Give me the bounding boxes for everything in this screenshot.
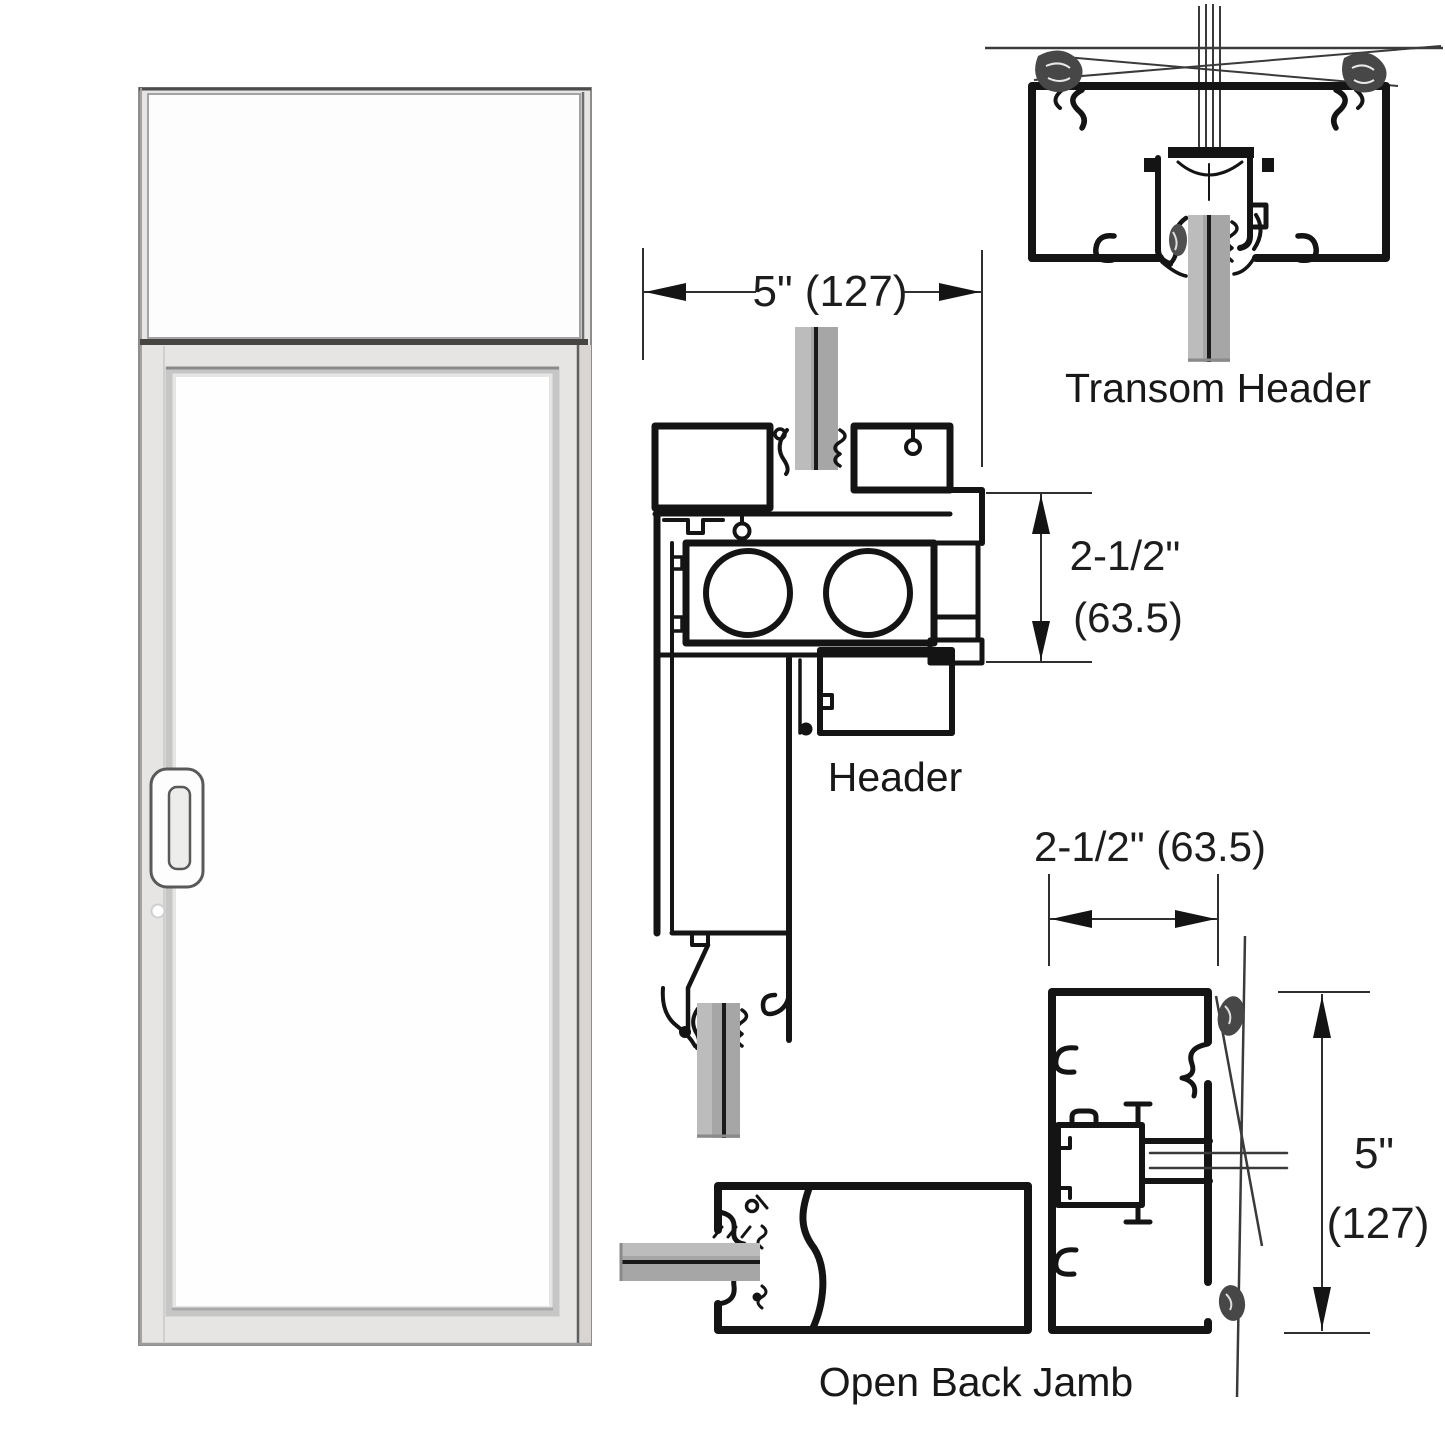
transom-bottom-bar bbox=[140, 339, 588, 345]
transom-glass bbox=[148, 94, 580, 338]
dim-jamb-width bbox=[1049, 874, 1218, 966]
right-jamb-strip bbox=[579, 345, 591, 1345]
label-open-back-jamb: Open Back Jamb bbox=[819, 1359, 1134, 1405]
label-header: Header bbox=[828, 754, 962, 800]
jamb-profile bbox=[1052, 992, 1287, 1330]
header-profile bbox=[655, 426, 982, 1048]
transom-header-drawing: Transom Header bbox=[985, 4, 1443, 411]
dim-jamb-height-mm: (127) bbox=[1327, 1199, 1430, 1248]
dim-jamb-width-text: 2-1/2" (63.5) bbox=[1034, 823, 1266, 870]
storefront-door-technical-drawing: 5" (127) 2-1/2" (63.5) Header bbox=[0, 0, 1445, 1445]
open-back-jamb-drawing: 2-1/2" (63.5) 5" (127) Open Back Jamb bbox=[620, 823, 1429, 1405]
dim-header-width-text: 5" (127) bbox=[752, 267, 907, 316]
dim-header-height-in: 2-1/2" bbox=[1070, 532, 1181, 579]
door-pull-handle bbox=[151, 769, 203, 887]
jamb-glass bbox=[620, 1243, 760, 1281]
header-glass-below bbox=[697, 1003, 740, 1138]
door-stile-section bbox=[714, 1186, 1028, 1330]
door-elevation bbox=[139, 88, 591, 1345]
header-glass-above bbox=[795, 327, 838, 470]
lock-cylinder bbox=[152, 905, 165, 918]
label-transom-header: Transom Header bbox=[1065, 365, 1371, 411]
door-glass bbox=[176, 377, 549, 1306]
transom-glass-below bbox=[1188, 215, 1230, 362]
dim-jamb-height-in: 5" bbox=[1354, 1129, 1394, 1178]
dim-header-height-mm: (63.5) bbox=[1073, 594, 1183, 641]
